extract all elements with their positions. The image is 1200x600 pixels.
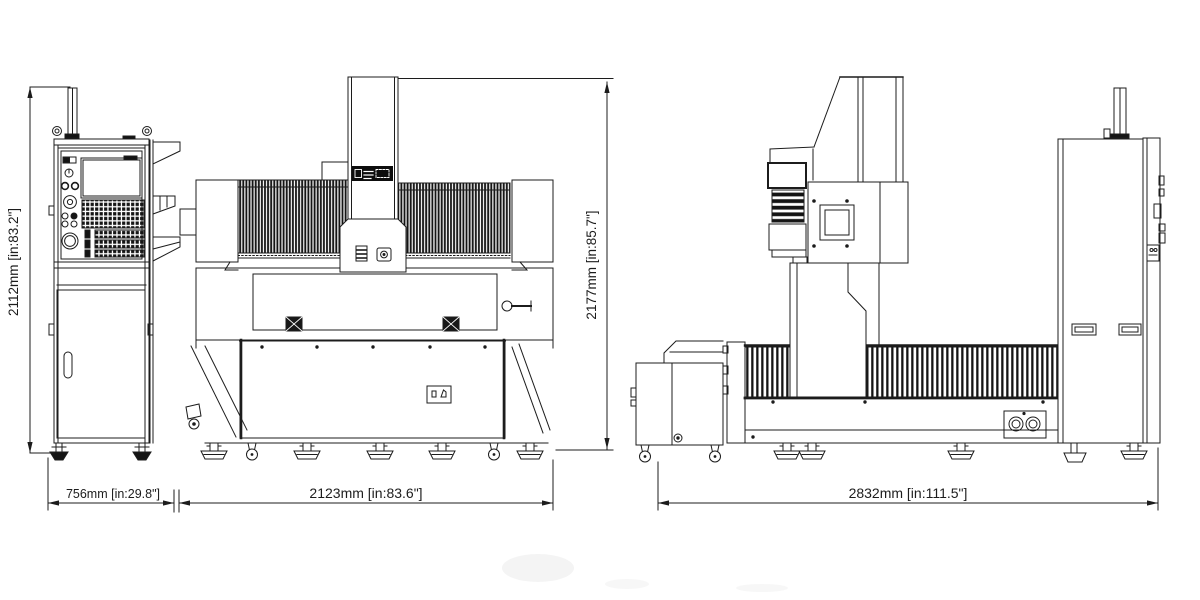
pendant-arm-joint bbox=[180, 209, 196, 235]
clamp-block bbox=[286, 317, 302, 331]
rotary-switch bbox=[64, 196, 77, 209]
dim-pendant-depth-label: 756mm [in:29.8"] bbox=[66, 487, 160, 501]
louver-vent-icon bbox=[1072, 324, 1096, 335]
column-step bbox=[322, 162, 350, 180]
power-socket-plate bbox=[1004, 411, 1046, 438]
dim-side-depth-label: 2832mm [in:111.5"] bbox=[849, 485, 968, 501]
socket-box bbox=[1147, 245, 1159, 261]
pendant-mounting-brackets bbox=[150, 140, 180, 443]
dim-pendant-height-label: 2112mm [in:83.2"] bbox=[6, 208, 21, 316]
louver-vent-icon bbox=[1119, 324, 1141, 335]
table-enclosure bbox=[196, 262, 553, 340]
scan-smudge bbox=[502, 554, 788, 592]
column-access-panel bbox=[793, 182, 908, 263]
panel-brand-strip bbox=[124, 156, 137, 160]
panel-button bbox=[62, 183, 69, 190]
machine-dimension-drawing: 2112mm [in:83.2"] 756mm [in:29.8"] 2123m… bbox=[0, 0, 1200, 600]
z-axis-column bbox=[348, 77, 398, 220]
front-left-tower bbox=[196, 180, 238, 262]
cnc-control-panel bbox=[58, 148, 145, 262]
door-handle-bar bbox=[502, 301, 531, 311]
cnc-keyboard bbox=[82, 200, 144, 257]
panel-button bbox=[62, 213, 68, 219]
dimension-pendant-height bbox=[27, 87, 70, 453]
panel-button bbox=[71, 213, 77, 219]
auxiliary-tank-unit bbox=[631, 341, 728, 462]
dim-machine-height-label: 2177mm [in:85.7"] bbox=[584, 210, 599, 319]
side-skirts bbox=[191, 340, 553, 437]
cnc-screen bbox=[81, 158, 142, 198]
machine-logo-badge bbox=[352, 166, 393, 181]
dimension-annotations: 2112mm [in:83.2"] 756mm [in:29.8"] 2123m… bbox=[6, 79, 1158, 513]
cabinet-side-profile bbox=[1104, 88, 1165, 443]
panel-button bbox=[72, 183, 79, 190]
door-handle bbox=[64, 352, 72, 378]
front-right-tower bbox=[512, 180, 553, 262]
pendant-feet bbox=[50, 443, 151, 460]
side-view bbox=[631, 77, 1165, 462]
dimension-machine-height bbox=[399, 79, 613, 451]
base-lower-panel bbox=[240, 340, 505, 438]
front-view bbox=[180, 77, 553, 460]
side-feet bbox=[774, 443, 1147, 462]
dim-front-width-label: 2123mm [in:83.6"] bbox=[309, 485, 422, 501]
bellows-cover-right bbox=[398, 183, 510, 258]
rear-enclosure bbox=[1058, 139, 1143, 443]
clamp-block bbox=[443, 317, 459, 331]
pendant-left-view bbox=[49, 88, 180, 460]
dimension-pendant-depth bbox=[48, 458, 179, 512]
panel-button bbox=[71, 221, 77, 227]
bellows-cover-left bbox=[238, 180, 348, 258]
control-plate bbox=[427, 386, 451, 403]
edge-caster bbox=[186, 404, 201, 429]
drawing-canvas: 2112mm [in:83.2"] 756mm [in:29.8"] 2123m… bbox=[0, 0, 1200, 600]
side-spindle-head bbox=[768, 163, 806, 257]
pendant-signal-pole bbox=[65, 88, 79, 138]
panel-button bbox=[62, 221, 68, 227]
spindle-head bbox=[340, 219, 406, 272]
saddle-pedestal bbox=[790, 263, 866, 397]
